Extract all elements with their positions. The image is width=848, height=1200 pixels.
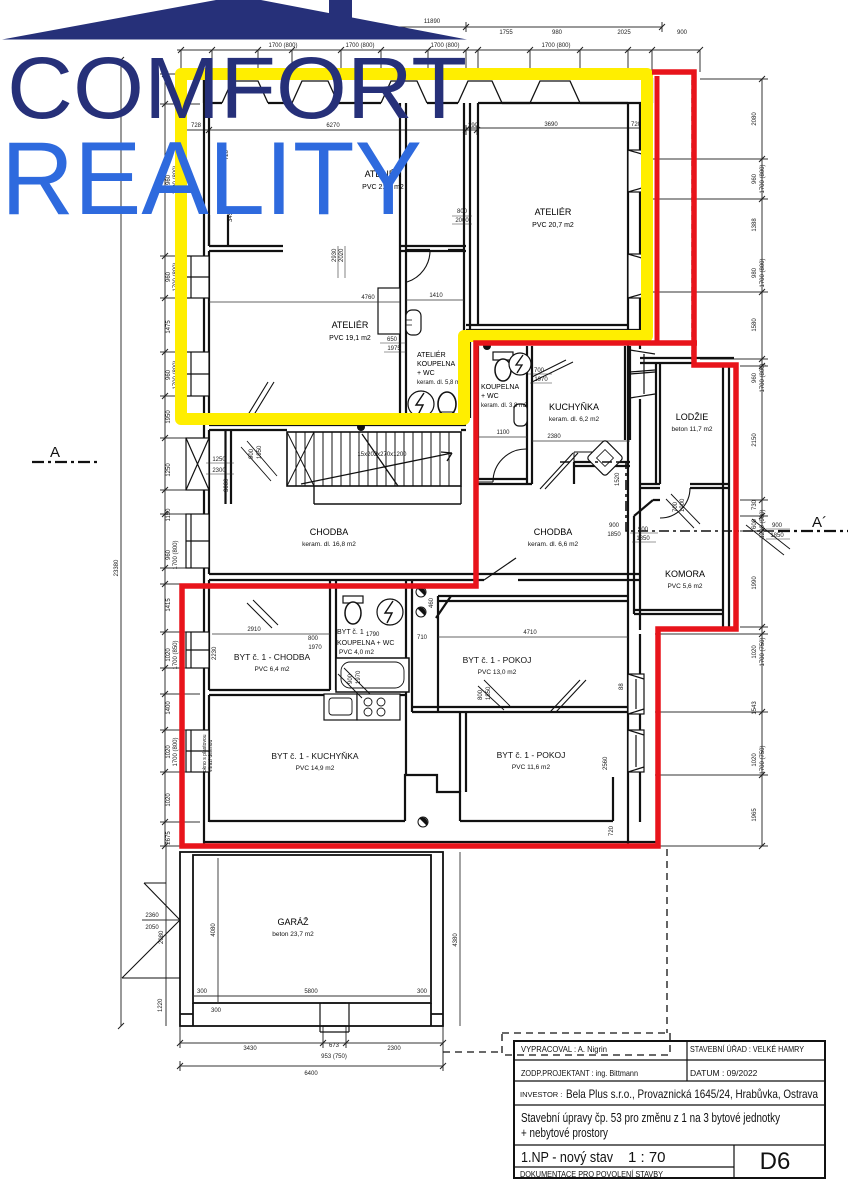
svg-text:900: 900 — [677, 30, 688, 36]
svg-text:+ WC: + WC — [417, 370, 435, 377]
svg-text:PVC 14,9 m2: PVC 14,9 m2 — [296, 765, 335, 772]
svg-text:1700 (800): 1700 (800) — [541, 43, 570, 49]
svg-text:+ nebytové prostory: + nebytové prostory — [521, 1125, 608, 1140]
svg-text:1700 (800): 1700 (800) — [760, 363, 766, 392]
svg-text:1965: 1965 — [752, 808, 758, 822]
svg-text:beton 23,7 m2: beton 23,7 m2 — [272, 931, 314, 938]
svg-text:2930: 2930 — [332, 248, 338, 262]
svg-text:CHODBA: CHODBA — [310, 527, 349, 537]
svg-text:BYT č. 1 - KUCHYŇKA: BYT č. 1 - KUCHYŇKA — [271, 751, 359, 761]
svg-text:6400: 6400 — [304, 1071, 318, 1077]
svg-text:1970: 1970 — [308, 645, 322, 651]
svg-text:ATELIÉR: ATELIÉR — [332, 320, 369, 330]
svg-text:2560: 2560 — [603, 756, 609, 770]
svg-text:beton 11,7 m2: beton 11,7 m2 — [671, 426, 712, 433]
svg-text:2025: 2025 — [617, 30, 631, 36]
svg-text:KUCHYŇKA: KUCHYŇKA — [549, 402, 599, 412]
svg-text:1415: 1415 — [166, 598, 172, 612]
svg-text:1020: 1020 — [166, 793, 172, 807]
svg-text:3690: 3690 — [544, 122, 558, 128]
svg-text:PVC 19,1 m2: PVC 19,1 m2 — [329, 335, 371, 342]
svg-text:1250: 1250 — [212, 457, 226, 463]
svg-text:D6: D6 — [760, 1148, 791, 1175]
svg-text:KOMORA: KOMORA — [665, 569, 705, 579]
svg-text:1990: 1990 — [752, 576, 758, 590]
svg-text:300: 300 — [211, 1008, 222, 1014]
svg-text:1850: 1850 — [636, 536, 650, 542]
svg-text:BYT č. 1 - CHODBA: BYT č. 1 - CHODBA — [234, 652, 311, 662]
svg-text:650: 650 — [387, 337, 398, 343]
svg-text:DOKUMENTACE PRO POVOLENÍ STAVB: DOKUMENTACE PRO POVOLENÍ STAVBY — [520, 1170, 664, 1179]
svg-text:BYT č. 1 - POKOJ: BYT č. 1 - POKOJ — [463, 655, 532, 665]
svg-text:730: 730 — [752, 499, 758, 510]
svg-text:2020: 2020 — [339, 248, 345, 262]
svg-text:5800: 5800 — [304, 989, 318, 995]
svg-text:1950: 1950 — [166, 410, 172, 424]
svg-text:710: 710 — [417, 635, 428, 641]
svg-text:2150: 2150 — [752, 433, 758, 447]
svg-text:23380: 23380 — [114, 559, 120, 576]
svg-text:1520: 1520 — [615, 472, 621, 486]
svg-text:keram. dl. 16,8 m2: keram. dl. 16,8 m2 — [302, 541, 356, 548]
svg-text:LODŽIE: LODŽIE — [676, 412, 709, 422]
svg-text:1020: 1020 — [752, 645, 758, 659]
svg-text:1543: 1543 — [752, 701, 758, 715]
svg-text:Stavební úpravy čp. 53 pro změ: Stavební úpravy čp. 53 pro změnu z 1 na … — [521, 1110, 780, 1125]
svg-text:1850: 1850 — [770, 533, 784, 539]
svg-text:1200 (900): 1200 (900) — [760, 509, 766, 538]
svg-text:A´: A´ — [812, 514, 827, 531]
svg-text:673: 673 — [329, 1043, 340, 1049]
svg-text:3430: 3430 — [243, 1046, 257, 1052]
svg-text:960: 960 — [166, 549, 172, 560]
svg-text:keram. dl. 3,8 m2: keram. dl. 3,8 m2 — [481, 403, 528, 409]
svg-text:PVC 4,0 m2: PVC 4,0 m2 — [339, 649, 374, 656]
svg-text:300: 300 — [197, 989, 208, 995]
svg-text:1580: 1580 — [752, 318, 758, 332]
svg-text:720: 720 — [609, 825, 615, 836]
svg-text:1900: 1900 — [680, 498, 686, 512]
svg-text:980: 980 — [752, 267, 758, 278]
svg-text:KOUPELNA + WC: KOUPELNA + WC — [337, 640, 394, 647]
svg-text:15x202x270x1200: 15x202x270x1200 — [357, 452, 407, 458]
svg-text:keram. dl. 6,6 m2: keram. dl. 6,6 m2 — [528, 541, 579, 548]
svg-text:DATUM : 09/2022: DATUM : 09/2022 — [690, 1068, 758, 1078]
svg-text:PVC 11,6 m2: PVC 11,6 m2 — [512, 764, 551, 771]
svg-text:88: 88 — [619, 683, 625, 690]
svg-text:INVESTOR :: INVESTOR : — [520, 1090, 562, 1099]
svg-text:STAVEBNÍ ÚŘAD : VELKÉ HAMRY: STAVEBNÍ ÚŘAD : VELKÉ HAMRY — [690, 1044, 804, 1054]
svg-text:900: 900 — [609, 523, 620, 529]
svg-text:2000: 2000 — [455, 218, 469, 224]
svg-text:PVC 5,6 m2: PVC 5,6 m2 — [667, 583, 702, 590]
svg-text:1700 (800): 1700 (800) — [760, 164, 766, 193]
svg-text:1975: 1975 — [387, 346, 401, 352]
svg-text:1700 (750): 1700 (750) — [760, 745, 766, 774]
svg-text:953 (750): 953 (750) — [321, 1054, 347, 1060]
svg-text:4760: 4760 — [361, 295, 375, 301]
svg-text:3060: 3060 — [224, 478, 230, 492]
svg-text:1400: 1400 — [166, 701, 172, 715]
svg-text:1020: 1020 — [752, 753, 758, 767]
svg-text:900: 900 — [249, 448, 255, 459]
svg-text:1755: 1755 — [499, 30, 513, 36]
svg-text:1700 (800): 1700 (800) — [173, 737, 179, 766]
svg-text:1475: 1475 — [166, 320, 172, 334]
svg-text:REALITY: REALITY — [1, 121, 422, 237]
svg-text:1388: 1388 — [752, 218, 758, 232]
svg-text:ATELIÉR: ATELIÉR — [417, 350, 446, 359]
svg-text:2080: 2080 — [159, 930, 165, 944]
svg-text:800: 800 — [308, 636, 319, 642]
svg-text:1 : 70: 1 : 70 — [628, 1149, 666, 1166]
svg-text:960: 960 — [752, 173, 758, 184]
svg-text:GARÁŽ: GARÁŽ — [277, 917, 309, 927]
svg-text:BYT č. 1 - POKOJ: BYT č. 1 - POKOJ — [497, 750, 566, 760]
svg-text:960: 960 — [166, 369, 172, 380]
svg-text:2910: 2910 — [247, 627, 261, 633]
svg-text:2230: 2230 — [212, 646, 218, 660]
svg-text:PVC 20,7 m2: PVC 20,7 m2 — [532, 222, 574, 229]
svg-text:1150: 1150 — [166, 508, 172, 522]
svg-text:2360: 2360 — [145, 913, 159, 919]
svg-text:CHODBA: CHODBA — [534, 527, 573, 537]
svg-text:1700 (800): 1700 (800) — [760, 258, 766, 287]
svg-text:1850: 1850 — [607, 532, 621, 538]
svg-text:960: 960 — [752, 372, 758, 383]
svg-text:4710: 4710 — [523, 630, 537, 636]
svg-text:+ WC: + WC — [481, 393, 499, 400]
svg-text:960: 960 — [166, 271, 172, 282]
svg-text:1250: 1250 — [166, 463, 172, 477]
svg-text:ATELIÉR: ATELIÉR — [535, 207, 572, 217]
svg-text:1790: 1790 — [366, 632, 380, 638]
svg-text:Bela Plus s.r.o., Provaznická: Bela Plus s.r.o., Provaznická 1645/24, H… — [566, 1087, 818, 1101]
svg-text:2050: 2050 — [145, 925, 159, 931]
svg-text:900: 900 — [772, 523, 783, 529]
svg-text:300: 300 — [417, 989, 428, 995]
svg-text:ZODP.PROJEKTANT : ing. Bittman: ZODP.PROJEKTANT : ing. Bittmann — [521, 1068, 638, 1078]
svg-text:800: 800 — [457, 209, 468, 215]
svg-text:2080: 2080 — [752, 112, 758, 126]
svg-text:KOUPELNA: KOUPELNA — [481, 384, 519, 391]
svg-text:900: 900 — [638, 527, 649, 533]
svg-text:PVC 6,4 m2: PVC 6,4 m2 — [254, 666, 289, 673]
svg-text:1.NP - nový stav: 1.NP - nový stav — [521, 1149, 613, 1166]
svg-text:2300: 2300 — [387, 1046, 401, 1052]
svg-text:1100: 1100 — [497, 430, 511, 436]
svg-text:vitrazi delenou: vitrazi delenou — [208, 740, 214, 772]
svg-text:1410: 1410 — [429, 293, 443, 299]
svg-text:980: 980 — [552, 30, 563, 36]
svg-text:2300: 2300 — [212, 468, 226, 474]
svg-text:11890: 11890 — [424, 19, 441, 25]
svg-text:2380: 2380 — [547, 434, 561, 440]
svg-text:KOUPELNA: KOUPELNA — [417, 361, 455, 368]
svg-text:1950: 1950 — [257, 445, 263, 459]
svg-text:4080: 4080 — [211, 923, 217, 937]
svg-text:1220: 1220 — [158, 998, 164, 1012]
svg-text:A: A — [50, 444, 60, 461]
svg-text:PVC 13,0 m2: PVC 13,0 m2 — [478, 669, 517, 676]
svg-text:1700 (850): 1700 (850) — [173, 640, 179, 669]
svg-text:1700 (800): 1700 (800) — [173, 540, 179, 569]
svg-text:1700 (750): 1700 (750) — [760, 637, 766, 666]
svg-text:2675: 2675 — [166, 831, 172, 845]
svg-text:1970: 1970 — [356, 670, 362, 684]
svg-text:1020: 1020 — [166, 648, 172, 662]
svg-text:4380: 4380 — [453, 933, 459, 947]
svg-text:1020: 1020 — [166, 745, 172, 759]
svg-text:keram. dl. 6,2 m2: keram. dl. 6,2 m2 — [549, 416, 600, 423]
svg-text:BYT č. 1: BYT č. 1 — [337, 629, 364, 636]
svg-text:VYPRACOVAL : A. Nigrin: VYPRACOVAL : A. Nigrin — [521, 1044, 607, 1054]
svg-text:460: 460 — [429, 597, 435, 608]
svg-text:keram. dl. 5,8 m2: keram. dl. 5,8 m2 — [417, 380, 464, 386]
